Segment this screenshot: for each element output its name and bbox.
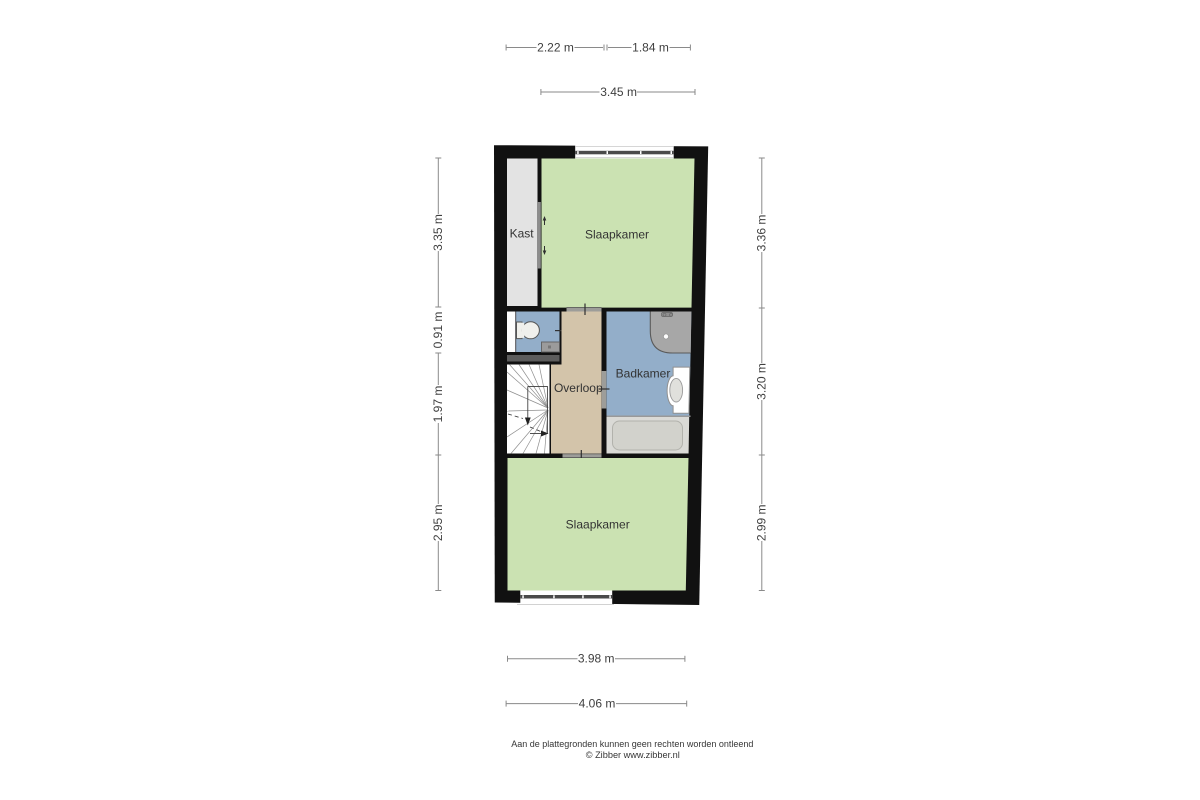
svg-text:4.06 m: 4.06 m (579, 696, 616, 710)
svg-text:© Zibber www.zibber.nl: © Zibber www.zibber.nl (586, 750, 680, 760)
svg-text:3.45 m: 3.45 m (600, 85, 637, 99)
svg-text:2.95 m: 2.95 m (431, 504, 445, 541)
svg-text:3.98 m: 3.98 m (578, 652, 615, 666)
svg-text:Slaapkamer: Slaapkamer (566, 518, 630, 532)
svg-text:2.99 m: 2.99 m (755, 504, 769, 541)
svg-text:Badkamer: Badkamer (616, 366, 671, 380)
svg-text:Kast: Kast (510, 226, 535, 240)
svg-text:3.36 m: 3.36 m (755, 215, 769, 252)
svg-text:Aan de plattegronden kunnen ge: Aan de plattegronden kunnen geen rechten… (511, 739, 753, 749)
svg-text:Slaapkamer: Slaapkamer (585, 228, 649, 242)
svg-text:0.91 m: 0.91 m (431, 312, 445, 349)
svg-text:3.20 m: 3.20 m (755, 363, 769, 400)
svg-text:Overloop: Overloop (554, 381, 603, 395)
svg-text:3.35 m: 3.35 m (431, 214, 445, 251)
svg-text:1.97 m: 1.97 m (431, 386, 445, 423)
svg-text:1.84 m: 1.84 m (632, 40, 669, 54)
svg-text:2.22 m: 2.22 m (537, 40, 574, 54)
